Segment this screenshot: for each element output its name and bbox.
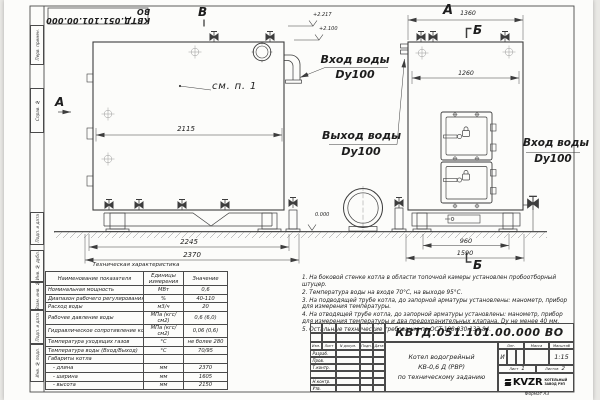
label-inlet-top-line1: Вход воды: [320, 54, 390, 65]
note-line: 3. На подводящей трубе котла, до запорно…: [302, 298, 574, 311]
logo-bars-icon: [505, 378, 511, 387]
dim-front-total: 2370: [162, 252, 222, 259]
col-header-value: Значение: [184, 272, 228, 286]
tech-table-row: Габариты котла: [46, 355, 228, 364]
label-outlet-line2: Dy100: [322, 146, 400, 157]
scale-value: 1:15: [549, 349, 574, 365]
col-header-units: Единицы измерения: [144, 272, 184, 286]
note-line: 1. На боковой стенке котла в области топ…: [302, 275, 574, 288]
label-inlet-top-line2: Dy100: [320, 69, 390, 80]
tech-table-title: Техническая характеристика: [45, 262, 227, 268]
tech-table-row: - длина мм 2370: [46, 364, 228, 373]
kvzr-logo: KVZR КОТЕЛЬНЫЙ ЗАВОД РЭП: [498, 373, 574, 392]
sheet-cell: Лист1: [498, 365, 536, 373]
margin-cell-podp-data-2: Подп. и дата: [30, 310, 44, 344]
sheets-cell: Листов2: [536, 365, 574, 373]
label-inlet-side-line2: Dy100: [523, 154, 583, 165]
note-line: 2. Температура воды на входе 70°С, на вы…: [302, 290, 574, 297]
title-block-description: Котел водогрейный КВ-0,6 Д (РВР) по техн…: [385, 342, 498, 392]
margin-cell-podp-data-1: Подп. и дата: [30, 212, 44, 245]
margin-cell-perv-primen: Перв. примен.: [30, 25, 44, 65]
top-inverted-stamp: КВТД.051.101.00.000 ВО: [48, 8, 148, 24]
logo-caption: КОТЕЛЬНЫЙ ЗАВОД РЭП: [544, 379, 567, 386]
lit-mass-scale-values: И 1:15: [498, 349, 574, 365]
dim-front-inner: 2115: [156, 126, 216, 133]
tech-table-row: - ширина мм 1605: [46, 372, 228, 381]
tech-table-row: Расход воды м3/ч 20: [46, 303, 228, 312]
callout-see-item-1: см. п. 1: [212, 82, 257, 92]
elevation-flue-top: +2.217: [313, 13, 332, 18]
revision-spare-grid: [310, 323, 385, 342]
mass-value: [524, 349, 549, 365]
tech-table-row: Гидравлическое сопротивление котла МПа (…: [46, 325, 228, 338]
logo-text: KVZR: [513, 377, 543, 388]
dim-side-base: 960: [451, 238, 481, 245]
lit-value: И: [498, 349, 507, 365]
format-label: Формат А3: [500, 393, 574, 397]
dim-side-top: 1360: [450, 11, 486, 17]
label-inlet-side-line1: Вход воды: [523, 138, 583, 149]
tech-table-row: - высота мм 2150: [46, 381, 228, 390]
elevation-boiler-top: +2.100: [319, 27, 338, 32]
col-header-name: Наименование показателя: [46, 272, 144, 286]
drawing-sheet: Перв. примен. Справ. № Подп. и дата Инв.…: [0, 0, 600, 400]
tech-table-row: Номинальная мощность МВт 0,6: [46, 286, 228, 295]
tech-table-row: Температура уходящих газов °С не более 2…: [46, 338, 228, 347]
tech-table-row: Рабочее давление воды МПа (кгс/см2) 0,6 …: [46, 312, 228, 325]
margin-cell-inv-dubl: Инв. № дубл.: [30, 250, 44, 282]
view-label-v: В: [198, 6, 207, 18]
view-label-a-front: А: [55, 96, 64, 108]
sheet-count-row: Лист1 Листов2: [498, 365, 574, 373]
tech-table-row: Температура воды (Вход/Выход) °С 70/95: [46, 346, 228, 355]
tech-table: Наименование показателя Единицы измерени…: [45, 271, 228, 390]
dim-side-total: 1590: [447, 250, 483, 257]
signature-rows: Разраб. Пров. Т.контр. Н.контр. Утв.: [310, 350, 385, 392]
title-block-designation: КВТД.051.101.00.000 ВО: [385, 323, 574, 342]
elevation-ground: 0.000: [315, 213, 329, 218]
margin-cell-inv-podl: Инв. № подл.: [30, 344, 44, 382]
dim-front-base: 2245: [159, 239, 219, 246]
tech-table-header-row: Наименование показателя Единицы измерени…: [46, 272, 228, 286]
tech-table-row: Диапазон рабочего регулирования % 40-110: [46, 294, 228, 303]
lit-mass-scale-header: Лит. Масса Масштаб: [498, 342, 574, 349]
margin-cell-sprav-n: Справ. №: [30, 88, 44, 133]
margin-cell-vzam-inv: Взам. инв. №: [30, 282, 44, 310]
revision-header-row: Изм. Лист N докум. Подп. Дата: [310, 342, 385, 350]
section-label-b-top: Б: [473, 24, 482, 36]
section-label-b-bottom: Б: [473, 259, 482, 271]
label-outlet-line1: Выход воды: [322, 130, 400, 141]
dim-side-inner: 1260: [448, 71, 484, 77]
